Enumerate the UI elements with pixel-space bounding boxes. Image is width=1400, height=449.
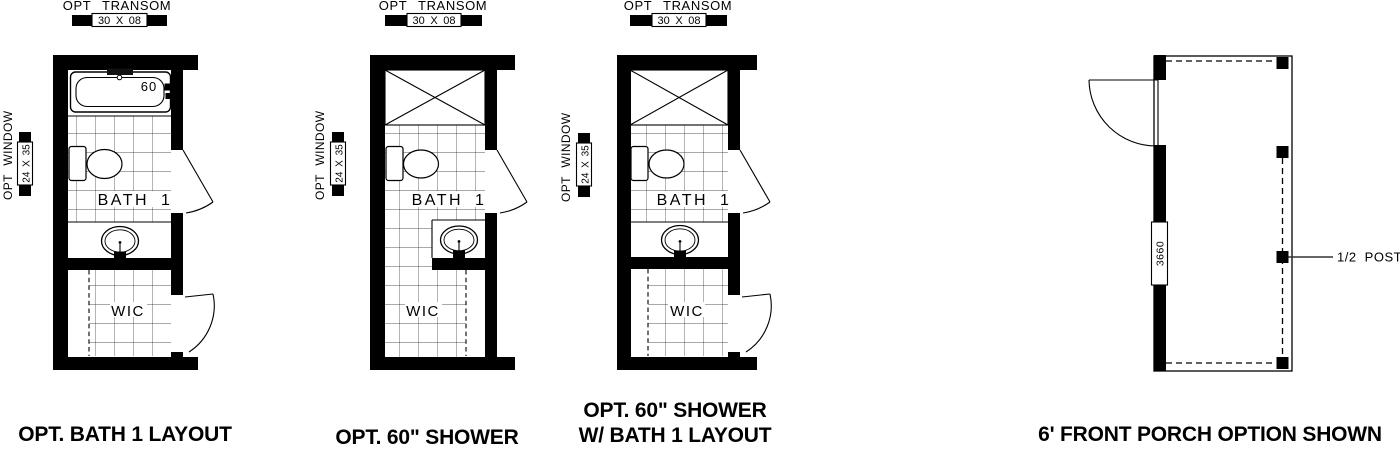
wall-left xyxy=(370,55,385,370)
transom-label: OPT TRANSOM xyxy=(624,0,732,13)
caption-front-porch: 6' FRONT PORCH OPTION SHOWN xyxy=(1020,422,1400,447)
entry-door-swing xyxy=(1089,80,1158,146)
transom-label: OPT TRANSOM xyxy=(63,0,171,13)
house-wall xyxy=(1154,55,1166,371)
transom-size-label: 30 X 08 xyxy=(658,15,701,27)
window-annotation: OPT WINDOW 24 X 35 xyxy=(1,110,33,200)
floor-plan-sheet: OPT TRANSOM 30 X 08 OPT WINDOW 24 X 35 xyxy=(0,0,1400,449)
porch-beam-dashed-lines xyxy=(1166,61,1283,363)
door-leaf xyxy=(742,294,770,297)
transom-size-label: 30 X 08 xyxy=(413,15,456,27)
post-top-right xyxy=(1277,57,1289,69)
wic-door-swing xyxy=(742,294,771,352)
plan-opt-60-shower: OPT TRANSOM 30 X 08 OPT WINDOW 24 X 35 xyxy=(313,0,527,370)
caption-opt-60-shower: OPT. 60" SHOWER xyxy=(302,425,552,449)
wall-vanity-wic xyxy=(68,258,183,270)
post-bottom-right xyxy=(1277,357,1289,369)
wall-vanity-stub xyxy=(432,258,487,270)
room-label-bath1: BATH 1 xyxy=(657,192,732,209)
window-size-label: 3660 xyxy=(1155,241,1167,266)
post-callout: 1/2 POST xyxy=(1289,250,1400,265)
window-annotation: OPT WINDOW 24 X 35 xyxy=(313,110,346,200)
wall-top xyxy=(53,55,198,70)
bathtub-icon: 60 xyxy=(71,69,172,113)
bath-door-swing xyxy=(740,150,770,213)
wall-right-lower xyxy=(485,213,497,370)
tub-size-label: 60 xyxy=(141,79,157,94)
wall-left-lower xyxy=(1154,285,1166,371)
wall-right-upper xyxy=(171,70,183,150)
room-label-bath1: BATH 1 xyxy=(98,192,173,209)
transom-annotation: OPT TRANSOM 30 X 08 xyxy=(63,0,171,27)
transom-size-label: 30 X 08 xyxy=(98,15,141,27)
wic-door-swing xyxy=(185,294,214,352)
caption-opt-60-shower-bath1: OPT. 60" SHOWER W/ BATH 1 LAYOUT xyxy=(550,398,800,448)
door-arc xyxy=(189,294,214,352)
hall-tile-floor xyxy=(385,220,432,357)
room-label-wic: WIC xyxy=(670,303,704,320)
wall-right-upper xyxy=(485,70,497,150)
window-3660: 3660 xyxy=(1152,222,1168,285)
sink-icon xyxy=(441,226,478,258)
shower-icon xyxy=(630,70,728,125)
transom-annotation: OPT TRANSOM 30 X 08 xyxy=(379,0,487,27)
door-leaf xyxy=(185,294,213,297)
wall-left xyxy=(617,55,631,370)
window-label: OPT WINDOW xyxy=(313,110,327,200)
caption-line-2: W/ BATH 1 LAYOUT xyxy=(550,423,800,448)
sink-faucet xyxy=(453,251,465,259)
wall-bottom xyxy=(53,357,198,370)
door-arc xyxy=(743,202,770,213)
bath-door-swing xyxy=(183,150,213,213)
wall-right-mid xyxy=(728,213,740,295)
window-label: OPT WINDOW xyxy=(1,110,15,200)
door-leaf xyxy=(497,150,527,202)
window-annotation: OPT WINDOW 24 X 35 xyxy=(559,112,592,202)
wall-vanity-wic xyxy=(630,257,740,269)
wall-door-jamb xyxy=(1154,55,1166,80)
transom-label: OPT TRANSOM xyxy=(379,0,487,13)
window-label: OPT WINDOW xyxy=(559,112,573,202)
caption-opt-bath1-layout: OPT. BATH 1 LAYOUT xyxy=(0,422,250,447)
sink-icon xyxy=(102,227,139,260)
room-label-bath1: BATH 1 xyxy=(412,192,487,209)
sink-icon xyxy=(662,226,699,259)
tub-drain xyxy=(117,75,122,80)
window-size-label: 24 X 35 xyxy=(581,145,592,184)
door-arc xyxy=(500,202,527,213)
room-label-wic: WIC xyxy=(406,303,440,320)
floor-plan-canvas: OPT TRANSOM 30 X 08 OPT WINDOW 24 X 35 xyxy=(0,0,1400,400)
post-label: 1/2 POST xyxy=(1337,250,1400,265)
window-size-label: 24 X 35 xyxy=(22,144,33,183)
caption-line-1: OPT. 60" SHOWER xyxy=(550,398,800,423)
wall-right-upper xyxy=(728,70,740,150)
plan-opt-bath1-layout: OPT TRANSOM 30 X 08 OPT WINDOW 24 X 35 xyxy=(1,0,214,370)
plan-front-porch: 3660 1/2 POST xyxy=(1089,55,1400,371)
wall-left-upper xyxy=(1154,145,1166,222)
sink-faucet xyxy=(674,251,686,259)
toilet-icon xyxy=(386,147,439,181)
door-leaf xyxy=(740,150,770,202)
door-leaf xyxy=(183,150,213,202)
wall-right-mid xyxy=(171,213,183,295)
window-size-label: 24 X 35 xyxy=(335,144,346,183)
wall-top xyxy=(617,55,757,70)
wall-bottom xyxy=(370,357,515,370)
toilet-icon xyxy=(69,147,122,181)
tub-faucet xyxy=(165,84,172,91)
porch-outline xyxy=(1154,56,1292,371)
door-arc xyxy=(1089,80,1156,146)
plan-opt-60-shower-bath1: OPT TRANSOM 30 X 08 OPT WINDOW 24 X 35 xyxy=(559,0,771,370)
wall-top xyxy=(370,55,515,70)
transom-annotation: OPT TRANSOM 30 X 08 xyxy=(624,0,732,27)
tub-deck xyxy=(107,69,133,76)
door-arc xyxy=(186,202,213,213)
shower-icon xyxy=(385,70,485,125)
door-arc xyxy=(746,294,771,352)
wall-left xyxy=(53,55,68,370)
post-right-upper xyxy=(1277,146,1289,158)
room-label-wic: WIC xyxy=(111,303,145,320)
bath-door-swing xyxy=(497,150,527,213)
sink-faucet xyxy=(114,252,126,260)
toilet-icon xyxy=(631,147,684,181)
wall-bottom xyxy=(617,357,757,370)
